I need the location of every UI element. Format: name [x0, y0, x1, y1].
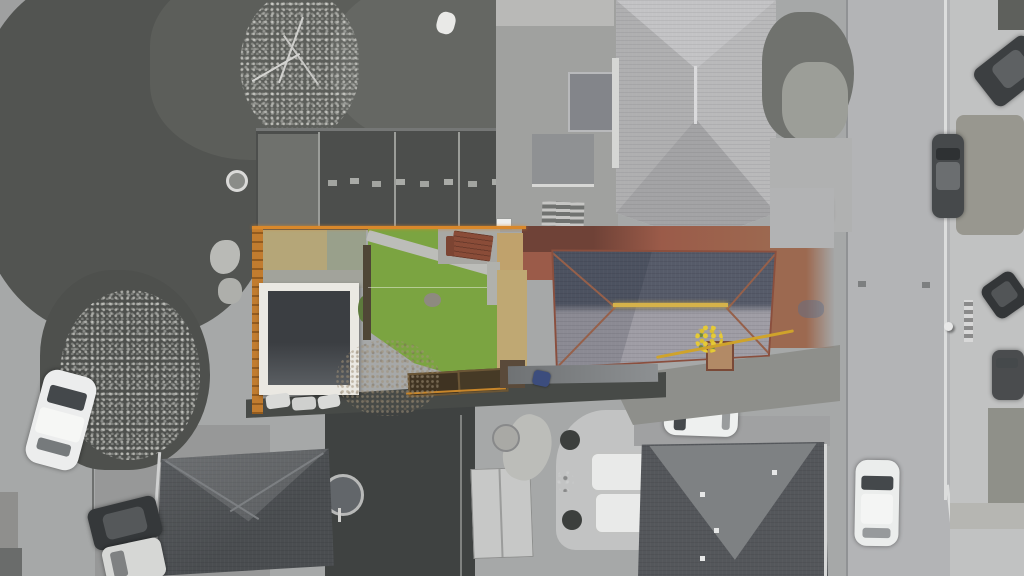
decking-panels — [258, 134, 318, 226]
blue-bin — [532, 369, 552, 387]
street-pole — [944, 322, 953, 331]
roof-vent — [700, 556, 705, 561]
front-grass-verge — [782, 62, 848, 142]
lawn-soil-edge — [363, 245, 371, 340]
garden-fence-line — [460, 415, 462, 576]
rust-blue-patch — [798, 300, 824, 318]
roof-vent — [772, 470, 777, 475]
rocks-light — [218, 278, 242, 304]
bottom-left-house-roof — [156, 446, 334, 576]
dish-pole — [338, 508, 341, 522]
gable-roof-corner — [0, 492, 18, 548]
stepping-stone — [396, 179, 405, 185]
patio-tan — [263, 230, 327, 270]
garden-wall-strip — [508, 364, 658, 385]
main-house-roof — [551, 249, 777, 368]
aerial-photo — [0, 0, 1024, 576]
roof-vent — [714, 528, 719, 533]
roof-ridge — [694, 66, 697, 124]
drain-cover — [922, 282, 930, 288]
fence-panel-line — [458, 132, 460, 228]
driveway-entrance-band — [950, 503, 1024, 529]
stepping-stone — [372, 181, 381, 187]
dark-car-parked-road — [932, 134, 964, 218]
bottom-right-house-roof — [638, 442, 828, 576]
white-car-cluster — [292, 396, 317, 411]
carport-corrugated-roof — [496, 0, 614, 26]
stepping-stone — [444, 179, 453, 185]
shrub — [560, 430, 580, 450]
roof-ridge-lichen — [613, 303, 728, 307]
washing-line — [368, 287, 500, 288]
big-house-roof — [616, 0, 776, 242]
pallet-bench — [542, 201, 585, 226]
concrete-pad — [770, 188, 834, 248]
pond-ring — [226, 170, 248, 192]
garden-fence-top-edge — [256, 128, 524, 131]
ladder-object — [964, 300, 973, 342]
stepping-stone — [468, 181, 477, 187]
boundary-line-top — [252, 226, 526, 229]
white-car-driving-road — [854, 460, 899, 547]
shrub — [562, 510, 582, 530]
shrub — [556, 470, 574, 492]
garden-bench — [446, 236, 454, 256]
round-planter — [492, 424, 520, 452]
stepping-stone — [350, 178, 359, 184]
shadow-corner — [0, 548, 22, 576]
stepping-stone — [328, 180, 337, 186]
picnic-table — [450, 230, 493, 261]
gutter-edge — [824, 444, 827, 576]
stepping-stone — [420, 181, 429, 187]
fence-panel-line — [318, 132, 320, 228]
road-white-line — [944, 0, 947, 500]
patio-olive — [327, 230, 366, 270]
garage-grey-roof — [532, 134, 594, 187]
sand-gravel-area — [497, 233, 523, 271]
bare-tree-overlay — [336, 340, 440, 416]
roof-vent — [700, 492, 705, 497]
drain-cover — [858, 281, 866, 287]
garden-wall-white — [612, 58, 619, 168]
hedge-top-right-corner — [998, 0, 1024, 30]
fire-pit-patch — [424, 293, 441, 307]
verge-rough — [956, 115, 1024, 235]
tan-strip-right — [497, 270, 527, 373]
dark-car-right-lower — [992, 350, 1024, 400]
